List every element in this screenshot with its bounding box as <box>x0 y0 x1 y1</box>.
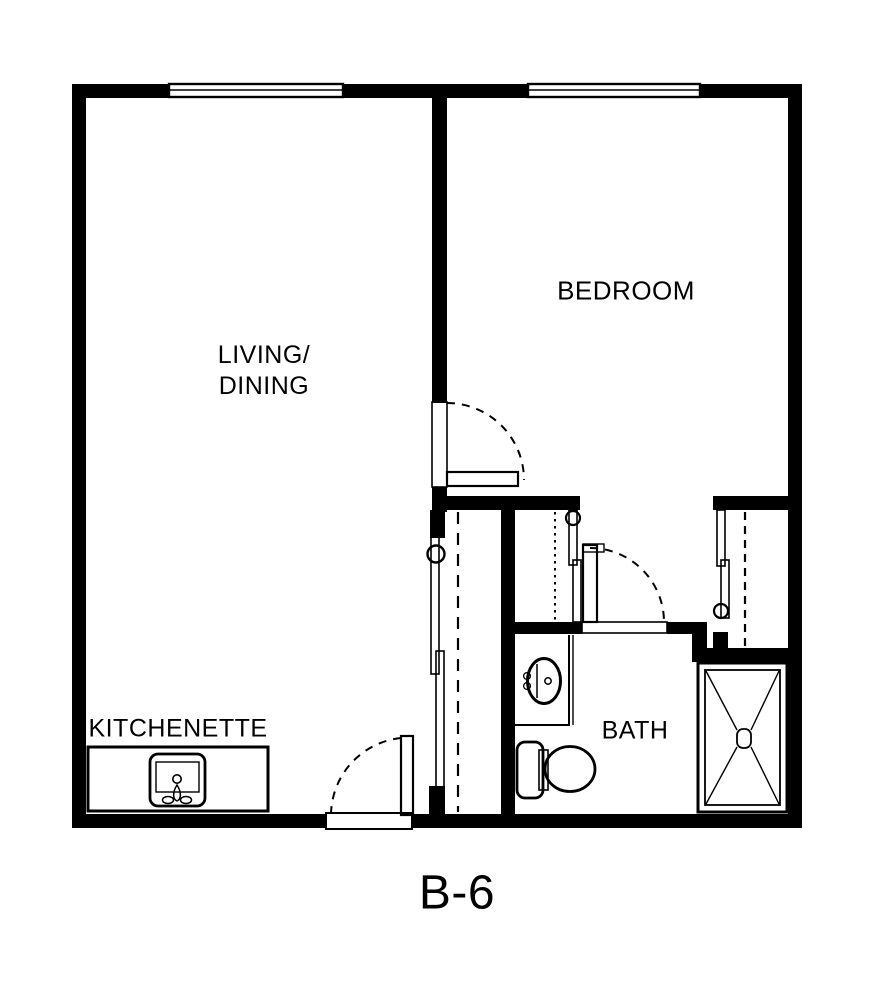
wall-segment <box>700 84 802 98</box>
bedroom-closet-doors-icon <box>714 510 745 646</box>
wall-segment <box>700 648 788 662</box>
bath-vanity <box>515 635 573 725</box>
wall-segment <box>412 814 802 828</box>
sink-basin <box>156 762 199 792</box>
faucet-base <box>181 797 192 804</box>
wall-segment <box>501 510 515 814</box>
entry-door-icon <box>326 736 413 829</box>
door-swing-arc <box>447 403 524 480</box>
door-pull-icon <box>428 546 445 563</box>
bedroom-window-icon <box>528 84 700 97</box>
shower-drain-icon <box>737 729 751 748</box>
wall-segment <box>72 84 169 98</box>
door-jamb <box>432 402 447 487</box>
floor-plan: LIVING/ DINING BEDROOM KITCHENETTE BATH … <box>0 0 878 998</box>
sliding-panel <box>569 510 577 565</box>
faucet-base <box>163 797 174 804</box>
sink-bowl <box>528 659 561 704</box>
faucet-icon <box>173 775 181 783</box>
bath-door-icon <box>582 544 667 633</box>
living-closet-doors-icon <box>428 512 459 812</box>
wall-segment <box>713 632 728 650</box>
shower-slope-line <box>751 671 779 730</box>
wall-segment <box>432 98 447 403</box>
vanity-sink-icon <box>524 659 561 704</box>
wall-segment <box>713 496 788 510</box>
living-window-icon <box>169 84 343 97</box>
wall-segment <box>515 622 582 634</box>
shower-slope-line <box>706 671 737 730</box>
room-label-line: DINING <box>219 372 310 400</box>
wall-segment <box>788 84 802 828</box>
wall-segment <box>343 84 528 98</box>
counter-outline <box>88 747 268 811</box>
sliding-panel <box>717 510 725 566</box>
faucet-spout <box>174 785 181 801</box>
plan-title: B-6 <box>419 866 495 921</box>
door-panel <box>583 545 597 622</box>
door-panel <box>401 736 413 815</box>
sliding-panel <box>573 560 581 622</box>
door-swing-arc <box>331 738 401 814</box>
shower-slope-line <box>706 747 737 804</box>
sliding-panel <box>436 651 444 788</box>
wall-segment <box>72 84 86 828</box>
wall-segment <box>430 510 445 538</box>
bedroom-door-icon <box>432 402 524 487</box>
wall-segment <box>429 786 445 816</box>
room-label-bath: BATH <box>602 716 669 747</box>
door-threshold <box>582 622 667 633</box>
shower-icon <box>698 663 787 812</box>
room-label-line: LIVING/ <box>218 341 310 369</box>
wall-segment <box>432 496 580 510</box>
door-swing-arc <box>590 548 664 622</box>
door-pull-icon <box>566 511 580 525</box>
toilet-icon <box>517 742 595 798</box>
room-label-living-dining: LIVING/ DINING <box>218 340 310 402</box>
wall-segment <box>72 814 326 828</box>
room-label-bedroom: BEDROOM <box>557 276 695 307</box>
toilet-bowl <box>545 747 595 792</box>
drain-icon <box>545 678 551 684</box>
door-panel <box>447 472 518 486</box>
floor-plan-drawing <box>0 0 878 998</box>
hall-closet-doors-icon <box>555 510 581 622</box>
shower-enclosure <box>698 663 787 812</box>
kitchen-sink-icon <box>150 754 205 806</box>
kitchenette-counter <box>88 747 268 811</box>
shower-slope-line <box>751 747 779 804</box>
sliding-panel <box>431 537 439 674</box>
door-threshold <box>326 813 412 829</box>
interior-walls <box>429 98 788 816</box>
room-label-kitchenette: KITCHENETTE <box>88 714 267 745</box>
